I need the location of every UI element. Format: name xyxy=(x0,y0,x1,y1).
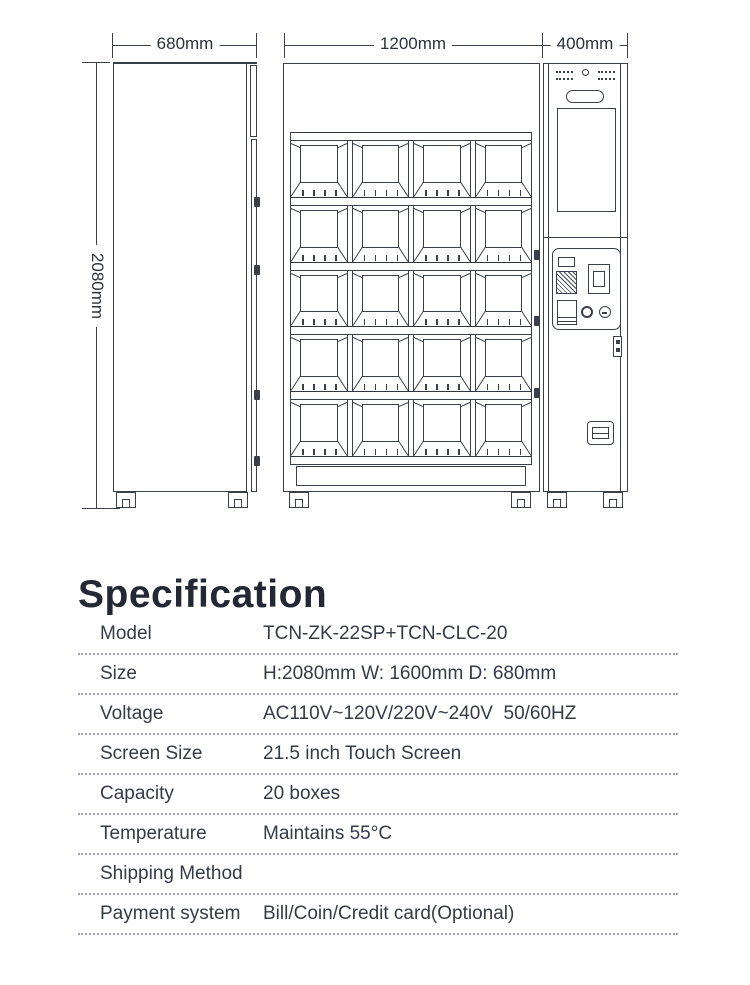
coin-return-button[interactable] xyxy=(599,306,611,318)
shelf xyxy=(291,326,531,335)
product-box-cell xyxy=(476,206,532,262)
product-box-cell xyxy=(353,400,409,456)
product-box-cell xyxy=(476,141,532,197)
spec-row: ModelTCN-ZK-22SP+TCN-CLC-20 xyxy=(78,615,678,655)
kick-panel xyxy=(296,466,526,486)
minus-icon xyxy=(602,312,607,314)
door-split-line xyxy=(543,237,628,238)
dimension-width-label: 1200mm xyxy=(374,34,452,54)
spec-row-label: Screen Size xyxy=(100,743,263,765)
door-edge-lower xyxy=(251,139,257,492)
product-box-cell xyxy=(414,271,470,327)
product-box-cell xyxy=(353,335,409,391)
cabinet-top-lip xyxy=(113,62,257,64)
spec-row: Payment systemBill/Coin/Credit card(Opti… xyxy=(78,895,678,935)
dimension-side-label: 400mm xyxy=(551,34,620,54)
box-grid xyxy=(290,132,532,465)
dimension-height-label: 2080mm xyxy=(87,245,107,327)
spec-row: SizeH:2080mm W: 1600mm D: 680mm xyxy=(78,655,678,695)
product-box-cell xyxy=(291,271,347,327)
spec-row: Screen Size21.5 inch Touch Screen xyxy=(78,735,678,775)
lock-panel xyxy=(613,336,622,357)
product-box-cell xyxy=(291,335,347,391)
coin-slot-icon[interactable] xyxy=(581,306,593,318)
spec-row-value: Bill/Coin/Credit card(Optional) xyxy=(263,903,678,925)
page-title: Specification xyxy=(78,573,327,617)
spec-row: TemperatureMaintains 55°C xyxy=(78,815,678,855)
spec-row: Capacity20 boxes xyxy=(78,775,678,815)
speaker-grille-icon xyxy=(598,71,615,80)
door-frame-line xyxy=(548,64,549,491)
spec-row-label: Capacity xyxy=(100,783,263,805)
speaker-grille-icon xyxy=(556,71,573,80)
product-box-cell xyxy=(476,335,532,391)
spec-row-label: Payment system xyxy=(100,903,263,925)
product-box-cell xyxy=(414,206,470,262)
cabinet-hinge xyxy=(534,316,540,326)
pickup-slot xyxy=(566,90,604,103)
caster-wheel xyxy=(289,492,309,508)
spec-row-label: Temperature xyxy=(100,823,263,845)
product-box-cell xyxy=(414,400,470,456)
product-box-cell xyxy=(353,141,409,197)
spec-row-value: H:2080mm W: 1600mm D: 680mm xyxy=(263,663,678,685)
caster-wheel xyxy=(547,492,567,508)
spec-row-label: Voltage xyxy=(100,703,263,725)
product-box-cell xyxy=(291,400,347,456)
shelf xyxy=(291,132,531,141)
spec-row-label: Shipping Method xyxy=(100,863,263,885)
product-box-cell xyxy=(414,335,470,391)
product-box-cell xyxy=(353,271,409,327)
product-box-cell xyxy=(476,271,532,327)
spec-row-value: Maintains 55°C xyxy=(263,823,678,845)
spec-row: Shipping Method xyxy=(78,855,678,895)
door-hinge xyxy=(254,390,260,400)
receipt-box-line xyxy=(558,321,576,322)
card-slot[interactable] xyxy=(558,257,575,267)
spec-sheet-page: 680mm 1200mm 400mm 2080mm xyxy=(0,0,750,985)
door-hinge xyxy=(254,265,260,275)
spec-row: VoltageAC110V~120V/220V~240V 50/60HZ xyxy=(78,695,678,735)
caster-wheel xyxy=(511,492,531,508)
product-box-cell xyxy=(414,141,470,197)
caster-wheel xyxy=(603,492,623,508)
spec-row-label: Model xyxy=(100,623,263,645)
door-hinge xyxy=(254,197,260,207)
shelf xyxy=(291,262,531,271)
receipt-box-line xyxy=(558,317,576,318)
product-box-cell xyxy=(291,141,347,197)
bill-acceptor-slot xyxy=(593,271,605,287)
shelf xyxy=(291,456,531,465)
keypad[interactable] xyxy=(556,271,577,294)
product-box-cell xyxy=(291,206,347,262)
caster-wheel xyxy=(228,492,248,508)
door-hinge xyxy=(254,456,260,466)
spec-row-value: TCN-ZK-22SP+TCN-CLC-20 xyxy=(263,623,678,645)
door-edge-upper xyxy=(250,65,257,137)
caster-wheel xyxy=(116,492,136,508)
product-box-cell xyxy=(353,206,409,262)
door-handle[interactable] xyxy=(587,421,614,445)
camera-icon xyxy=(582,69,589,76)
shelf xyxy=(291,197,531,206)
product-box-cell xyxy=(476,400,532,456)
spec-table: ModelTCN-ZK-22SP+TCN-CLC-20SizeH:2080mm … xyxy=(78,615,678,935)
cabinet-hinge xyxy=(534,250,540,260)
cabinet-hinge xyxy=(534,388,540,398)
shelf xyxy=(291,391,531,400)
touch-screen[interactable] xyxy=(557,108,616,212)
spec-row-value: AC110V~120V/220V~240V 50/60HZ xyxy=(263,703,678,725)
dimension-depth-label: 680mm xyxy=(151,34,220,54)
spec-row-value: 21.5 inch Touch Screen xyxy=(263,743,678,765)
spec-row-label: Size xyxy=(100,663,263,685)
spec-row-value: 20 boxes xyxy=(263,783,678,805)
